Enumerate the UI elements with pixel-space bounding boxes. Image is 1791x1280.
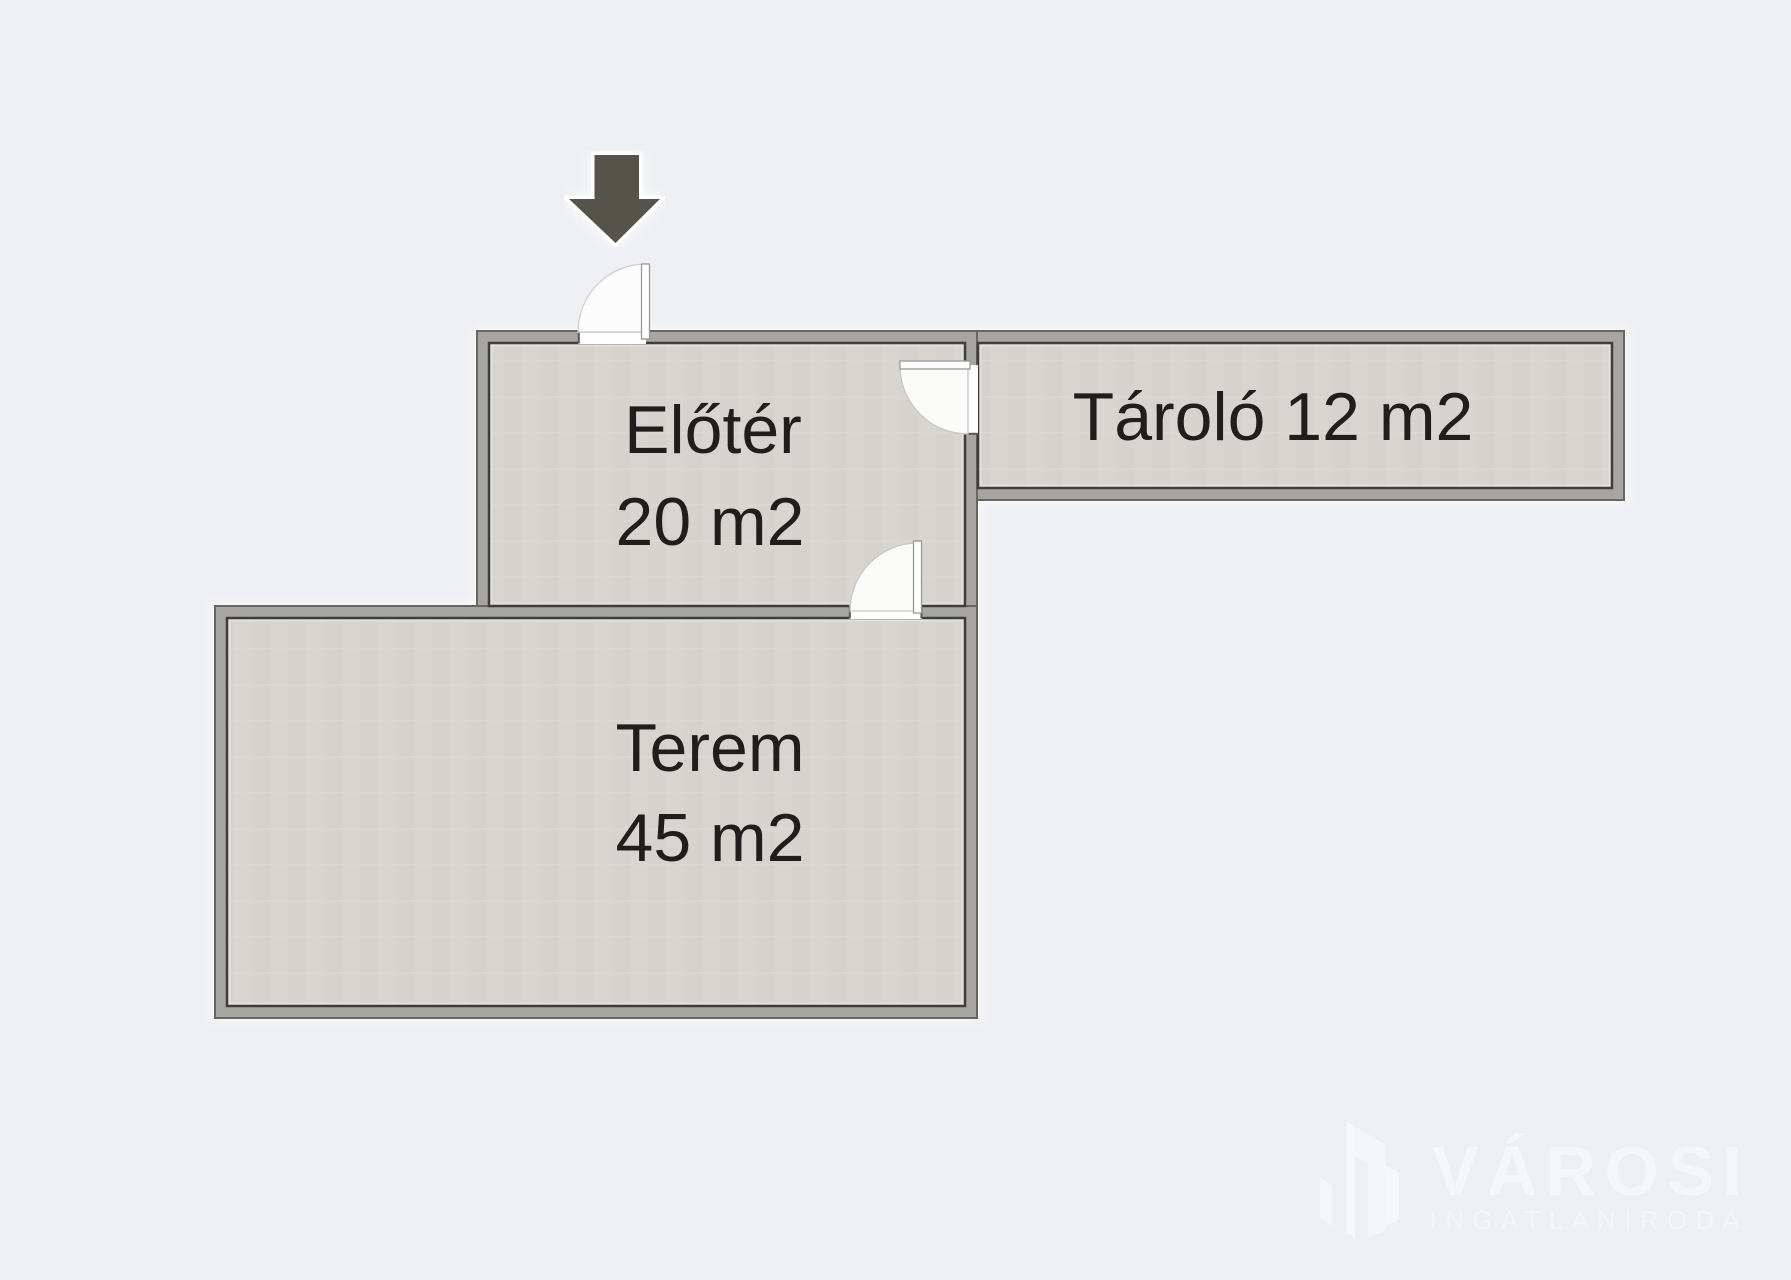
svg-text:Tároló 12 m2: Tároló 12 m2 [1073, 379, 1474, 455]
svg-text:VÁROSI: VÁROSI [1432, 1132, 1750, 1210]
svg-text:Előtér: Előtér [624, 392, 802, 468]
svg-text:INGATLANIRODA: INGATLANIRODA [1430, 1207, 1748, 1235]
svg-text:20 m2: 20 m2 [616, 484, 805, 560]
svg-text:45 m2: 45 m2 [616, 800, 805, 876]
svg-text:Terem: Terem [616, 710, 805, 786]
